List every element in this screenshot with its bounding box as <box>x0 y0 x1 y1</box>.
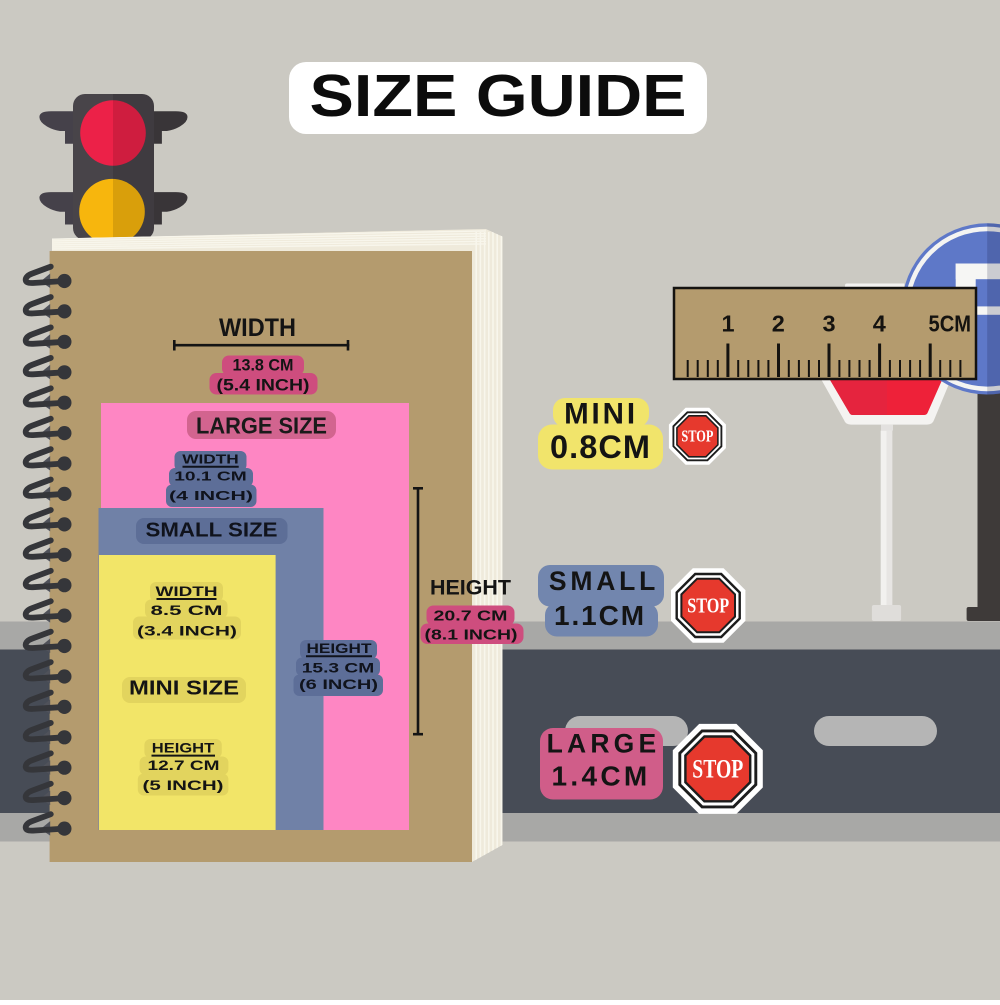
svg-text:STOP: STOP <box>692 754 743 784</box>
svg-text:20.7 CM: 20.7 CM <box>434 609 508 625</box>
svg-text:WIDTH: WIDTH <box>156 584 218 599</box>
svg-text:MINI: MINI <box>564 398 638 431</box>
svg-text:2: 2 <box>772 311 785 337</box>
svg-text:10.1 CM: 10.1 CM <box>174 469 247 484</box>
svg-text:SMALL SIZE: SMALL SIZE <box>146 519 278 542</box>
svg-text:(4 INCH): (4 INCH) <box>169 488 253 503</box>
svg-text:1.4CM: 1.4CM <box>552 761 651 792</box>
svg-text:3: 3 <box>823 311 836 337</box>
svg-text:15.3 CM: 15.3 CM <box>302 661 375 676</box>
svg-text:5CM: 5CM <box>929 311 972 337</box>
svg-text:SMALL: SMALL <box>549 566 659 596</box>
svg-text:8.5 CM: 8.5 CM <box>151 603 223 618</box>
svg-text:(5.4 INCH): (5.4 INCH) <box>217 377 310 395</box>
svg-text:LARGE: LARGE <box>547 729 661 759</box>
svg-text:12.7 CM: 12.7 CM <box>148 758 220 773</box>
svg-text:LARGE SIZE: LARGE SIZE <box>196 413 327 439</box>
svg-text:4: 4 <box>873 311 886 337</box>
svg-text:WIDTH: WIDTH <box>219 314 296 342</box>
svg-text:1: 1 <box>721 311 734 337</box>
svg-text:(5 INCH): (5 INCH) <box>143 778 224 793</box>
svg-text:STOP: STOP <box>687 594 729 618</box>
svg-text:STOP: STOP <box>681 427 713 446</box>
svg-text:SIZE GUIDE: SIZE GUIDE <box>310 63 687 129</box>
svg-text:HEIGHT: HEIGHT <box>152 741 215 756</box>
svg-text:1.1CM: 1.1CM <box>554 600 646 631</box>
svg-text:0.8CM: 0.8CM <box>550 429 651 465</box>
svg-text:(3.4 INCH): (3.4 INCH) <box>137 624 237 639</box>
svg-text:(6 INCH): (6 INCH) <box>299 677 378 692</box>
svg-text:(8.1 INCH): (8.1 INCH) <box>425 628 518 644</box>
svg-text:MINI SIZE: MINI SIZE <box>129 678 239 700</box>
svg-text:HEIGHT: HEIGHT <box>307 641 373 656</box>
svg-text:HEIGHT: HEIGHT <box>430 576 511 600</box>
svg-text:WIDTH: WIDTH <box>182 453 239 467</box>
svg-text:13.8 CM: 13.8 CM <box>233 357 294 375</box>
